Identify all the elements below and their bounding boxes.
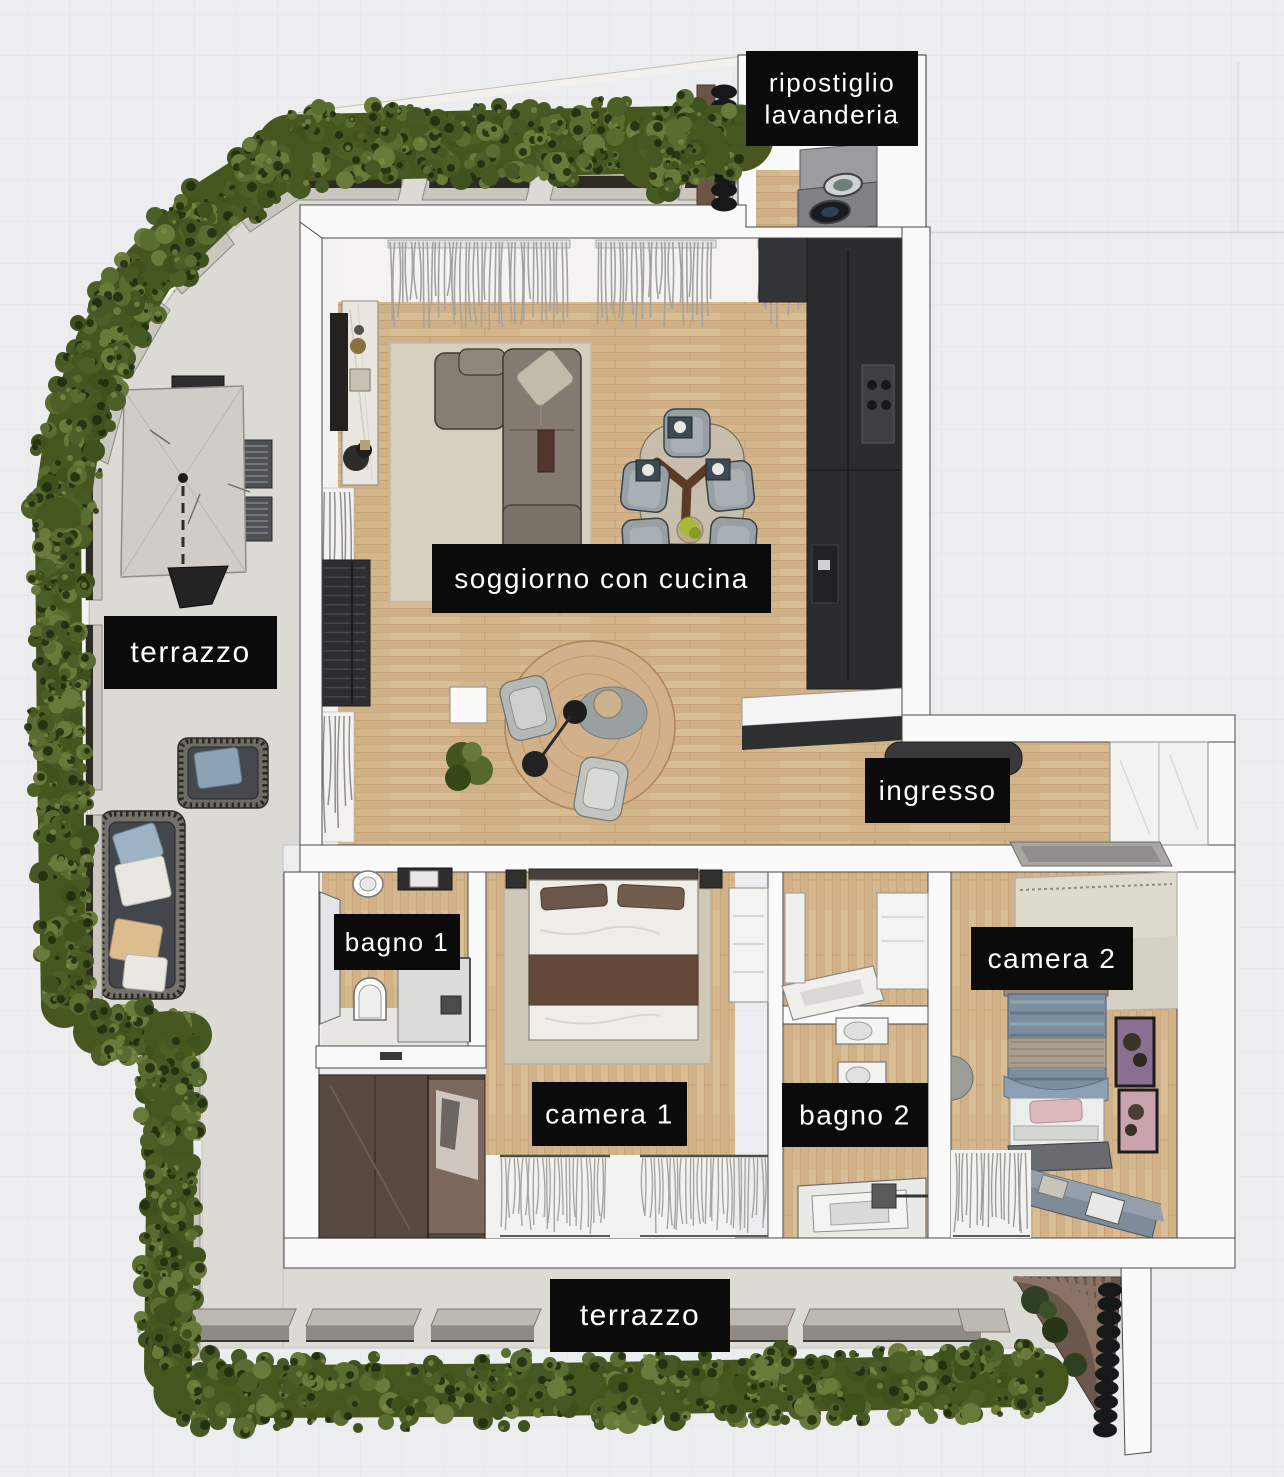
svg-text:lavanderia: lavanderia [765, 100, 900, 130]
svg-text:terrazzo: terrazzo [580, 1299, 700, 1332]
svg-text:bagno 1: bagno 1 [345, 927, 449, 957]
svg-text:camera 1: camera 1 [545, 1099, 674, 1130]
svg-text:camera 2: camera 2 [988, 943, 1117, 974]
svg-text:terrazzo: terrazzo [130, 636, 250, 669]
svg-text:ripostiglio: ripostiglio [769, 67, 895, 97]
svg-text:ingresso: ingresso [879, 775, 997, 806]
svg-text:soggiorno con cucina: soggiorno con cucina [454, 563, 749, 594]
svg-text:bagno 2: bagno 2 [799, 1100, 911, 1131]
